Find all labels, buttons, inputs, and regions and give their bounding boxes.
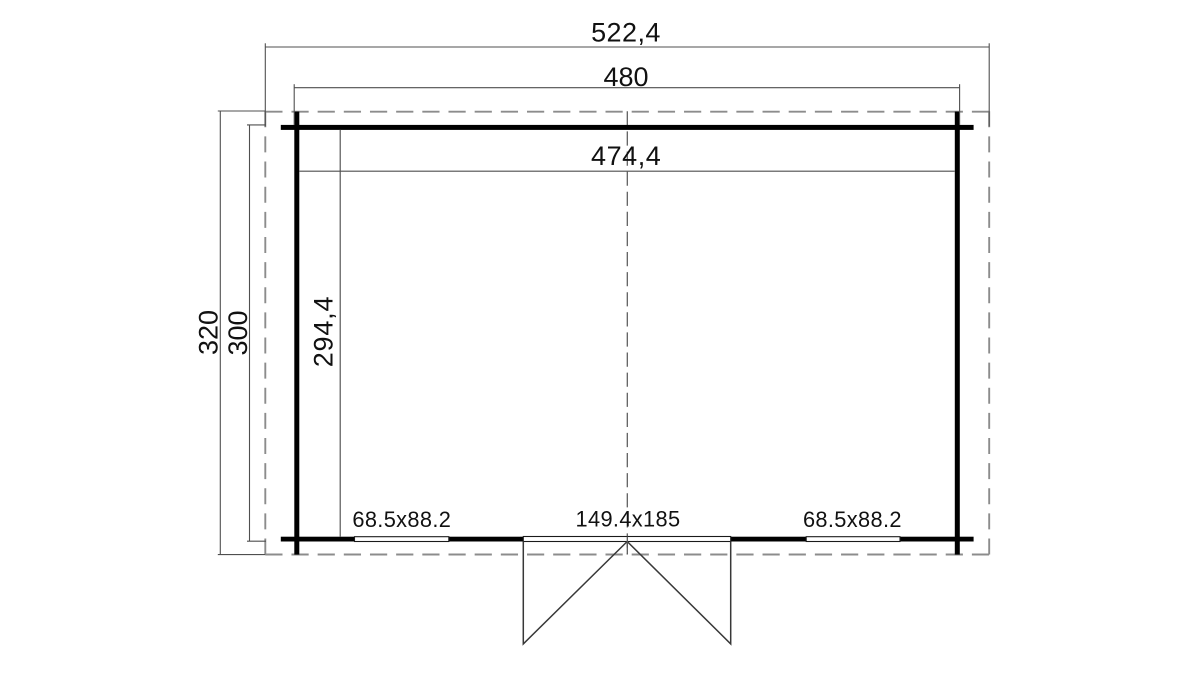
svg-text:149.4x185: 149.4x185	[576, 507, 681, 532]
svg-text:320: 320	[194, 310, 224, 355]
svg-text:474,4: 474,4	[591, 141, 661, 171]
svg-text:68.5x88.2: 68.5x88.2	[352, 507, 451, 532]
svg-text:522,4: 522,4	[591, 17, 661, 47]
svg-text:294,4: 294,4	[308, 296, 338, 368]
svg-text:300: 300	[223, 310, 253, 355]
svg-text:480: 480	[603, 62, 648, 92]
svg-text:68.5x88.2: 68.5x88.2	[803, 507, 902, 532]
